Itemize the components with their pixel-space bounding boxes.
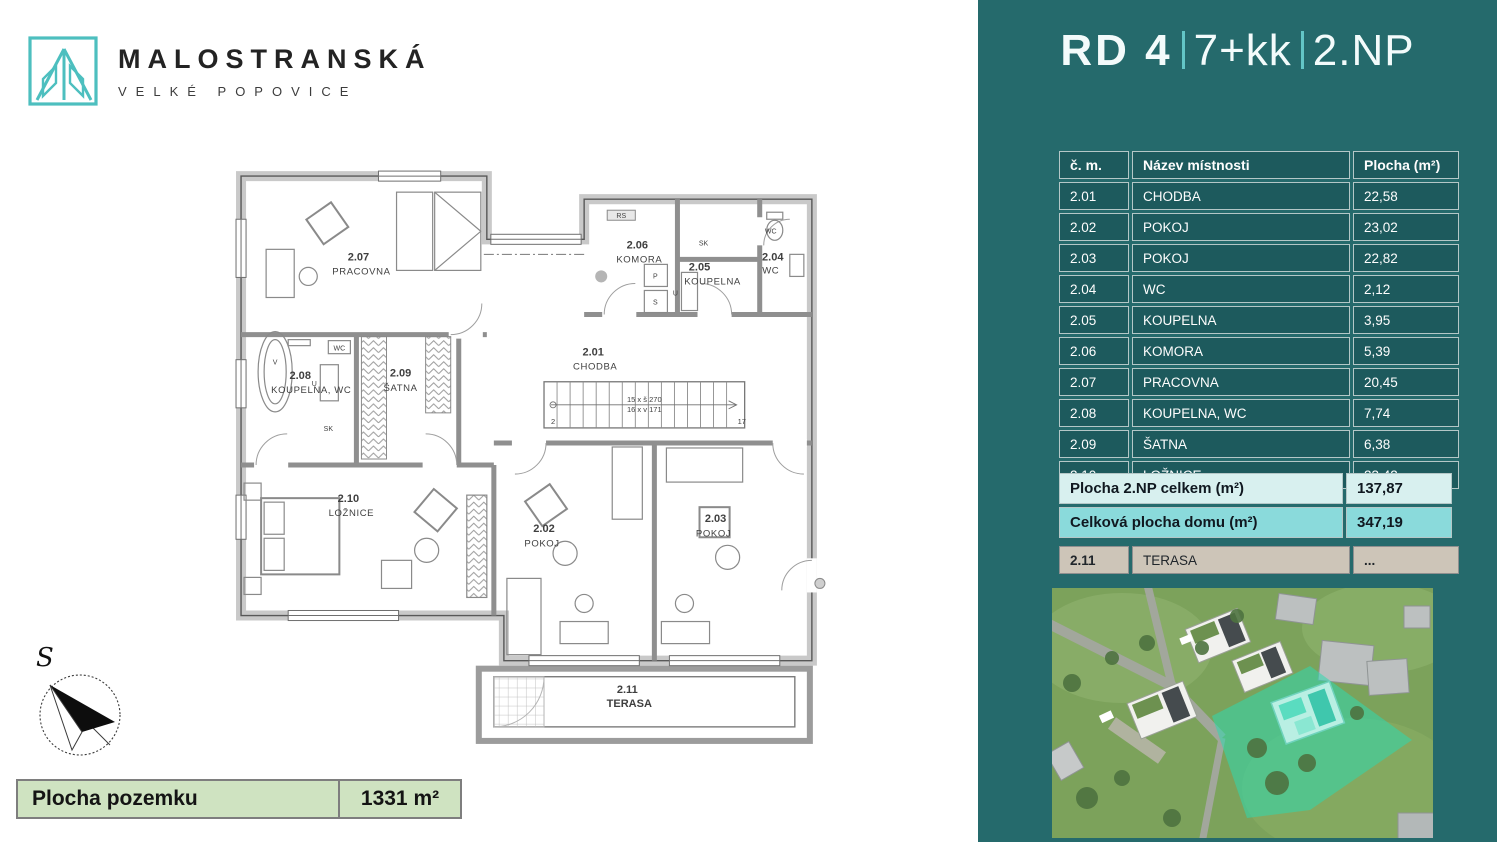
svg-text:WC: WC [765, 228, 777, 235]
svg-text:U: U [312, 381, 317, 388]
col-header-area: Plocha (m²) [1353, 151, 1459, 179]
svg-text:2.06: 2.06 [627, 239, 648, 251]
svg-text:PRACOVNA: PRACOVNA [332, 266, 390, 277]
svg-text:2.07: 2.07 [348, 251, 369, 263]
svg-text:17: 17 [738, 417, 746, 426]
svg-text:POKOJ: POKOJ [696, 528, 731, 539]
svg-text:LOŽNICE: LOŽNICE [329, 508, 374, 519]
col-header-number: č. m. [1059, 151, 1129, 179]
logo-house-icon [26, 34, 100, 108]
svg-text:TERASA: TERASA [607, 698, 652, 710]
svg-text:SK: SK [699, 240, 709, 247]
col-header-name: Název místnosti [1132, 151, 1350, 179]
svg-text:SK: SK [324, 426, 334, 433]
info-panel: RD 47+kk2.NP č. m. Název místnosti Ploch… [978, 0, 1497, 842]
terrace-row: 2.11 TERASA ... [1059, 546, 1459, 574]
logo-subtitle: VELKÉ POPOVICE [118, 84, 432, 99]
summary-table: Plocha 2.NP celkem (m²) 137,87 Celková p… [1056, 470, 1455, 541]
svg-text:RS: RS [616, 213, 626, 220]
svg-text:V: V [273, 360, 278, 367]
svg-text:KOUPELNA: KOUPELNA [684, 276, 741, 287]
title-project: RD 4 [1060, 26, 1172, 75]
aerial-site-render [1052, 588, 1433, 838]
title-disposition: 7+kk [1194, 26, 1292, 75]
svg-text:S: S [653, 300, 658, 307]
table-row: 2.01CHODBA22,58 [1059, 182, 1459, 210]
svg-text:2.05: 2.05 [689, 261, 710, 273]
svg-text:16 x v 171: 16 x v 171 [627, 405, 662, 414]
page: MALOSTRANSKÁ VELKÉ POPOVICE [0, 0, 1497, 842]
svg-text:2.01: 2.01 [582, 347, 603, 359]
plot-area-label: Plocha pozemku [17, 780, 339, 818]
summary-row-floor: Plocha 2.NP celkem (m²) 137,87 [1059, 473, 1452, 504]
svg-text:2.03: 2.03 [705, 513, 726, 525]
svg-text:2.11: 2.11 [617, 684, 638, 696]
table-row: 2.05KOUPELNA3,95 [1059, 306, 1459, 334]
logo: MALOSTRANSKÁ VELKÉ POPOVICE [26, 34, 432, 108]
svg-text:U: U [673, 290, 678, 297]
table-row: 2.06KOMORA5,39 [1059, 337, 1459, 365]
svg-text:2: 2 [551, 417, 555, 426]
room-area-table: č. m. Název místnosti Plocha (m²) 2.01CH… [1056, 148, 1462, 492]
svg-text:15 x š 270: 15 x š 270 [627, 395, 662, 404]
logo-title: MALOSTRANSKÁ [118, 44, 432, 75]
north-compass-icon: S [22, 640, 132, 765]
terrace-table: 2.11 TERASA ... [1056, 543, 1462, 577]
table-header-row: č. m. Název místnosti Plocha (m²) [1059, 151, 1459, 179]
svg-text:ŠATNA: ŠATNA [384, 383, 418, 394]
table-row: 2.08KOUPELNA, WC7,74 [1059, 399, 1459, 427]
svg-text:KOMORA: KOMORA [616, 254, 662, 265]
title-separator [1182, 31, 1185, 69]
svg-text:WC: WC [762, 265, 779, 276]
svg-text:2.09: 2.09 [390, 368, 411, 380]
svg-text:POKOJ: POKOJ [524, 538, 559, 549]
title-separator [1301, 31, 1304, 69]
svg-text:S: S [36, 643, 54, 673]
table-row: 2.09ŠATNA6,38 [1059, 430, 1459, 458]
table-row: 2.02POKOJ23,02 [1059, 213, 1459, 241]
table-row: 2.04WC2,12 [1059, 275, 1459, 303]
table-row: 2.07PRACOVNA20,45 [1059, 368, 1459, 396]
title-floor: 2.NP [1313, 26, 1415, 75]
svg-text:2.02: 2.02 [533, 523, 554, 535]
svg-text:CHODBA: CHODBA [573, 362, 617, 373]
plot-area-table: Plocha pozemku 1331 m² [16, 779, 462, 819]
svg-text:WC: WC [334, 346, 346, 353]
table-row: 2.03POKOJ22,82 [1059, 244, 1459, 272]
svg-text:2.10: 2.10 [338, 493, 359, 505]
svg-text:2.08: 2.08 [290, 370, 311, 382]
summary-row-house: Celková plocha domu (m²) 347,19 [1059, 507, 1452, 538]
svg-text:P: P [653, 273, 658, 280]
floorplan-drawing: 15 x š 270 16 x v 171 2 17 [228, 163, 850, 747]
page-title: RD 47+kk2.NP [978, 26, 1497, 76]
plot-area-value: 1331 m² [339, 780, 461, 818]
svg-text:2.04: 2.04 [762, 251, 784, 263]
staircase: 15 x š 270 16 x v 171 2 17 [544, 382, 746, 428]
